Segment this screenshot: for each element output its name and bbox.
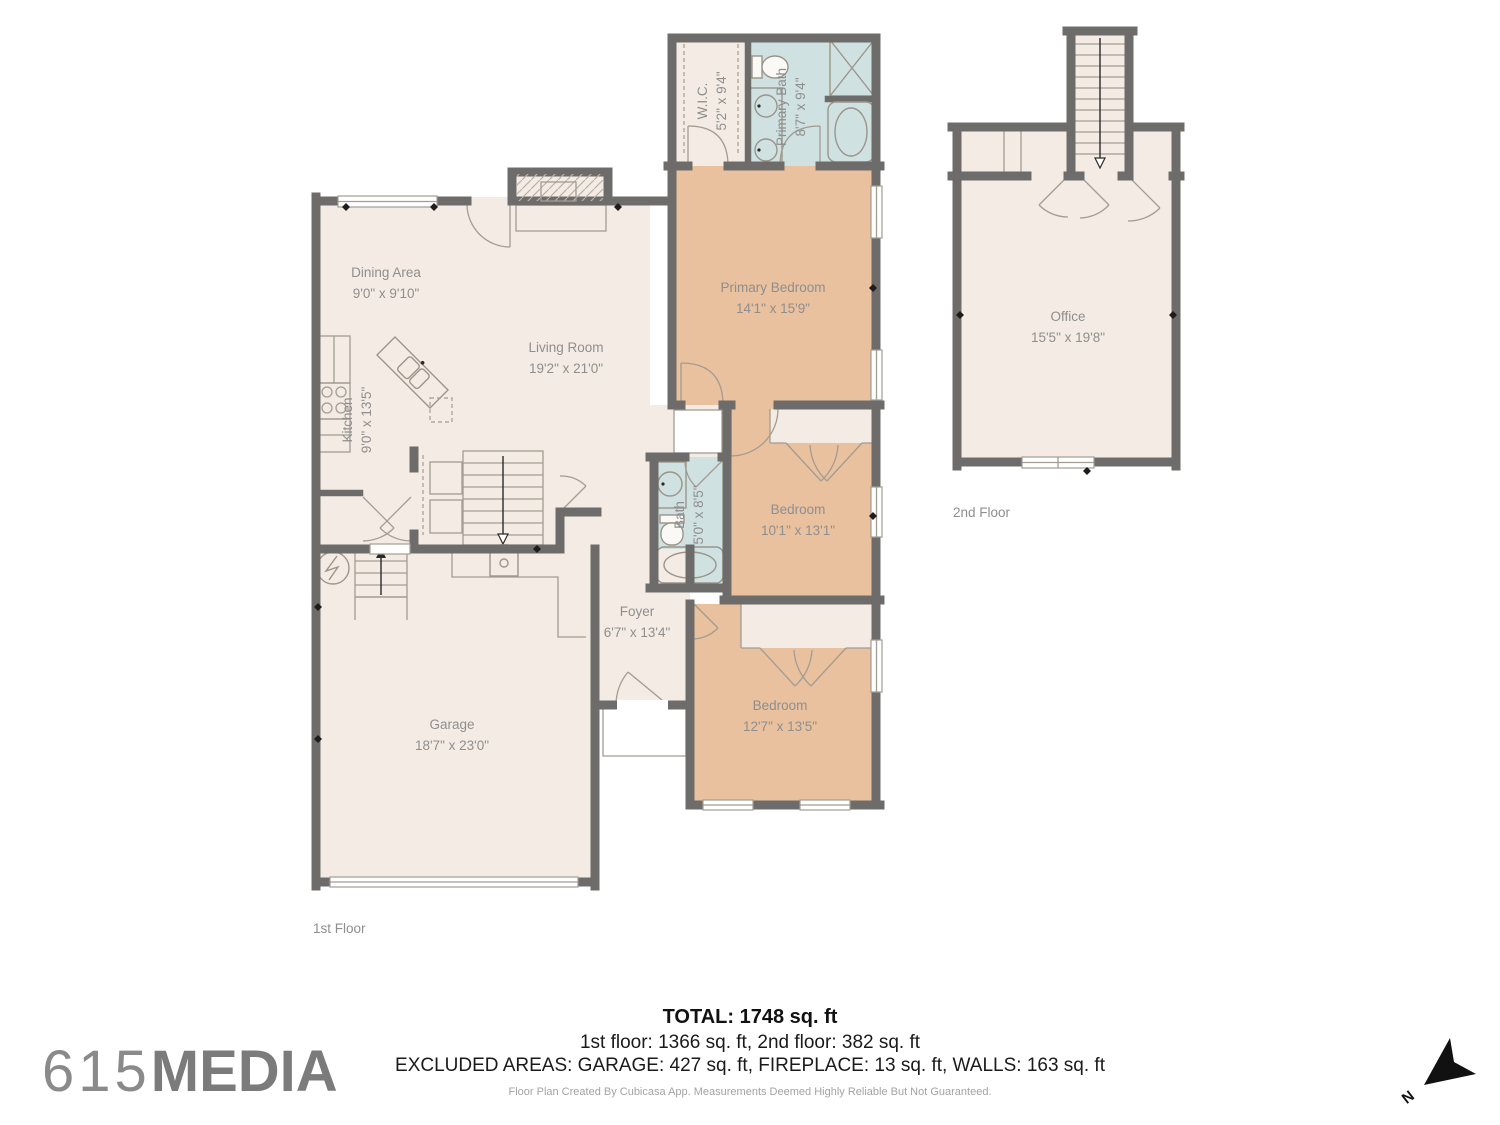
room-dims-primary-bedroom: 14'1" x 15'9" <box>736 301 810 316</box>
room-label-kitchen: Kitchen <box>340 397 355 442</box>
room-dims-dining: 9'0" x 9'10" <box>353 286 420 301</box>
room-label-office: Office <box>1050 309 1085 324</box>
room-dims-foyer: 6'7" x 13'4" <box>604 625 671 640</box>
room-dims-office: 15'5" x 19'8" <box>1031 330 1105 345</box>
first-floor-plan: Dining Area 9'0" x 9'10" Living Room 19'… <box>313 38 882 936</box>
mud-door-threshold <box>370 544 410 554</box>
room-dims-garage: 18'7" x 23'0" <box>415 738 489 753</box>
closet-mid-bedroom <box>770 409 872 443</box>
room-dims-kitchen: 9'0" x 13'5" <box>359 387 374 454</box>
floor-areas: 1st floor: 1366 sq. ft, 2nd floor: 382 s… <box>0 1031 1500 1054</box>
room-dims-living: 19'2" x 21'0" <box>529 361 603 376</box>
total-area: TOTAL: 1748 sq. ft <box>0 1006 1500 1029</box>
room-dims-bedroom-mid: 10'1" x 13'1" <box>761 523 835 538</box>
second-floor-label: 2nd Floor <box>953 505 1011 520</box>
room-dims-bedroom-lower: 12'7" x 13'5" <box>743 719 817 734</box>
porch <box>601 709 688 758</box>
room-label-living: Living Room <box>528 340 603 355</box>
closet-lower-bedroom <box>741 604 872 648</box>
room-label-bath: Bath <box>672 501 687 529</box>
room-label-wic: W.I.C. <box>695 83 710 120</box>
room-dims-wic: 5'2" x 9'4" <box>714 71 729 130</box>
room-label-foyer: Foyer <box>620 604 655 619</box>
hall-threshold <box>674 410 722 453</box>
floor-plan-page: Dining Area 9'0" x 9'10" Living Room 19'… <box>0 0 1500 1125</box>
room-label-primary-bedroom: Primary Bedroom <box>720 280 825 295</box>
room-label-bedroom-lower: Bedroom <box>753 698 808 713</box>
toilet <box>752 56 762 78</box>
disclaimer: Floor Plan Created By Cubicasa App. Meas… <box>0 1086 1500 1098</box>
floor-plan-canvas: Dining Area 9'0" x 9'10" Living Room 19'… <box>0 0 1500 1125</box>
room-label-dining: Dining Area <box>351 265 421 280</box>
room-dims-bath: 5'0" x 8'5" <box>691 485 706 544</box>
room-dims-primary-bath: 8'7" x 9'4" <box>793 77 808 136</box>
room-garage <box>316 549 595 882</box>
room-label-garage: Garage <box>429 717 474 732</box>
first-floor-label: 1st Floor <box>313 921 366 936</box>
area-summary: TOTAL: 1748 sq. ft 1st floor: 1366 sq. f… <box>0 1006 1500 1109</box>
second-floor-plan: Office 15'5" x 19'8" 2nd Floor <box>952 31 1180 520</box>
room-label-bedroom-mid: Bedroom <box>771 502 826 517</box>
excluded-areas: EXCLUDED AREAS: GARAGE: 427 sq. ft, FIRE… <box>0 1054 1500 1077</box>
front-door-threshold <box>617 700 668 710</box>
room-label-primary-bath: Primary Bath <box>774 68 789 146</box>
